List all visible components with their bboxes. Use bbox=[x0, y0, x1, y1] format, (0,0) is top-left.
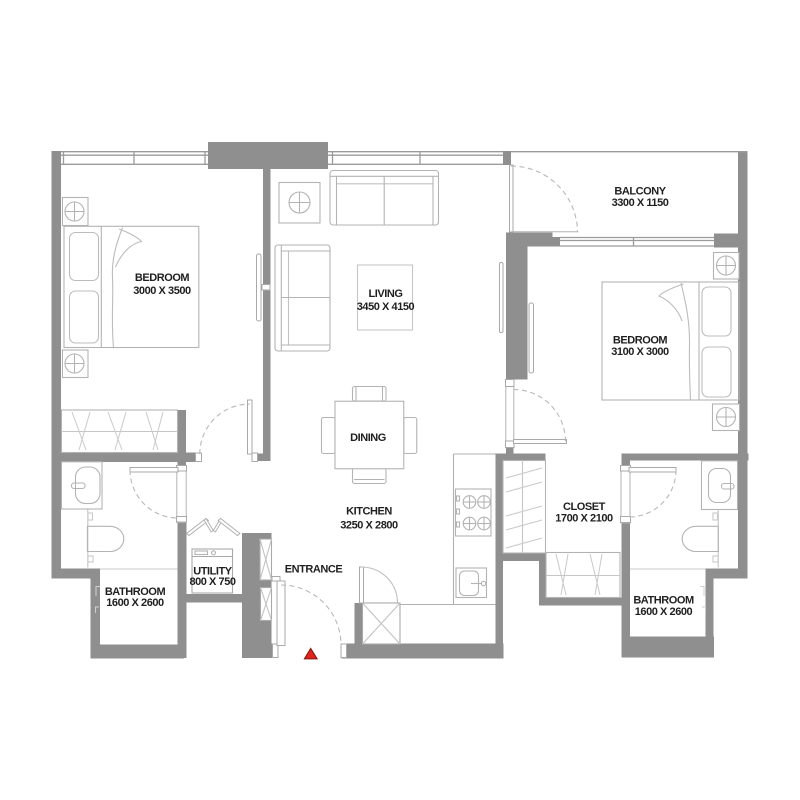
svg-text:3450 X 4150: 3450 X 4150 bbox=[357, 301, 415, 313]
svg-text:KITCHEN: KITCHEN bbox=[346, 506, 392, 518]
svg-text:BALCONY: BALCONY bbox=[614, 186, 666, 198]
svg-text:DINING: DINING bbox=[350, 432, 386, 444]
svg-text:BEDROOM: BEDROOM bbox=[135, 272, 190, 284]
svg-text:ENTRANCE: ENTRANCE bbox=[285, 564, 343, 576]
svg-text:LIVING: LIVING bbox=[369, 288, 403, 300]
svg-text:CLOSET: CLOSET bbox=[563, 501, 606, 513]
svg-text:3300 X 1150: 3300 X 1150 bbox=[612, 197, 669, 209]
svg-text:3000 X 3500: 3000 X 3500 bbox=[133, 285, 191, 297]
svg-text:3100 X 3000: 3100 X 3000 bbox=[611, 346, 669, 358]
svg-text:BEDROOM: BEDROOM bbox=[613, 335, 668, 347]
svg-text:BATHROOM: BATHROOM bbox=[633, 595, 694, 607]
svg-text:3250 X 2800: 3250 X 2800 bbox=[340, 520, 398, 532]
svg-text:1700 X 2100: 1700 X 2100 bbox=[555, 513, 613, 525]
svg-text:1600 X 2600: 1600 X 2600 bbox=[106, 597, 164, 609]
svg-text:800 X 750: 800 X 750 bbox=[189, 576, 235, 588]
svg-text:1600 X 2600: 1600 X 2600 bbox=[635, 606, 693, 618]
